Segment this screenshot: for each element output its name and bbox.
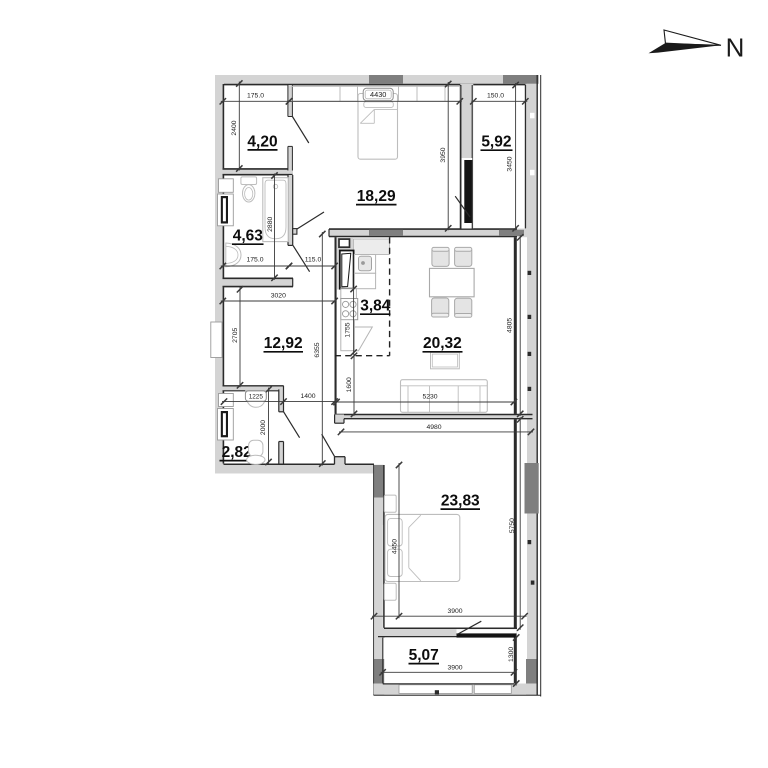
svg-text:2400: 2400 [231, 120, 238, 135]
svg-text:3450: 3450 [507, 156, 514, 171]
svg-text:18,29: 18,29 [357, 188, 396, 205]
svg-text:1600: 1600 [346, 377, 353, 392]
svg-text:175.0: 175.0 [247, 92, 264, 99]
svg-text:4,20: 4,20 [247, 134, 277, 151]
svg-text:3900: 3900 [447, 665, 462, 672]
svg-text:1755: 1755 [345, 322, 352, 337]
svg-text:4980: 4980 [426, 424, 441, 431]
svg-text:1300: 1300 [508, 647, 515, 662]
svg-text:4,63: 4,63 [233, 228, 264, 245]
svg-text:2000: 2000 [260, 420, 267, 435]
svg-text:23,83: 23,83 [441, 493, 480, 510]
svg-text:2880: 2880 [267, 217, 274, 232]
svg-text:5750: 5750 [509, 518, 516, 533]
svg-text:4450: 4450 [392, 539, 399, 554]
svg-text:5230: 5230 [422, 394, 437, 401]
svg-text:4430: 4430 [370, 90, 386, 99]
svg-text:3,84: 3,84 [360, 298, 391, 315]
svg-text:3020: 3020 [271, 293, 286, 300]
svg-text:20,32: 20,32 [423, 335, 462, 352]
svg-text:N: N [726, 33, 745, 63]
svg-text:150.0: 150.0 [487, 92, 504, 99]
svg-text:115.0: 115.0 [305, 257, 322, 264]
svg-text:3950: 3950 [440, 147, 447, 162]
svg-text:12,92: 12,92 [264, 335, 303, 352]
svg-text:6355: 6355 [314, 342, 321, 357]
svg-text:175.0: 175.0 [246, 257, 263, 264]
svg-text:4805: 4805 [507, 318, 514, 333]
svg-text:3900: 3900 [447, 608, 462, 615]
svg-text:5,07: 5,07 [409, 647, 439, 664]
svg-text:1225: 1225 [249, 393, 264, 400]
svg-text:5,92: 5,92 [481, 134, 511, 151]
svg-text:1400: 1400 [300, 393, 315, 400]
svg-text:2705: 2705 [232, 328, 239, 343]
